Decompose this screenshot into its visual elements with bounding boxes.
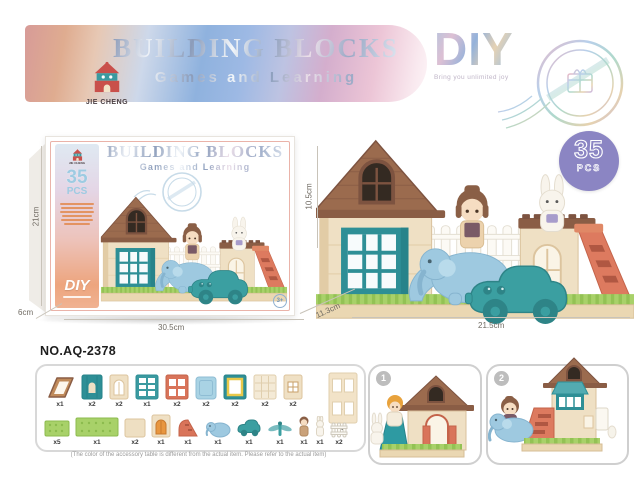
small-window-panel-icon [283, 374, 303, 400]
part-girl-figure: x1 [298, 416, 310, 447]
part-qty: x2 [88, 402, 95, 409]
box-width-dim-line [64, 319, 304, 320]
badge-label: PCS [559, 163, 619, 173]
part-lattice-panel: x2 [253, 374, 277, 409]
part-small-baseplate: x5 [44, 418, 70, 447]
part-qty: x1 [93, 440, 100, 447]
part-qty: x2 [115, 402, 122, 409]
teal-grid-window-icon [135, 374, 159, 400]
car-icon [236, 418, 262, 438]
part-slide: x1 [176, 416, 200, 447]
part-qty: x2 [289, 402, 296, 409]
badge-number: 35 [559, 138, 619, 163]
part-qty: x5 [53, 440, 60, 447]
girl-figure-icon [298, 416, 310, 438]
red-window-panel-icon [165, 374, 189, 400]
part-small-window-panel: x2 [283, 374, 303, 409]
part-car: x1 [236, 418, 262, 447]
part-qty: x1 [56, 402, 63, 409]
part-qty: x1 [157, 440, 164, 447]
model-number: NO.AQ-2378 [40, 344, 116, 358]
rabbit-figure-icon [315, 416, 325, 438]
banner-subtitle: Games and Learning [111, 69, 401, 86]
box-front-face: JIE CHENG 35 PCS DIY BUILDING BLOCKS Gam… [45, 136, 295, 316]
part-elephant-slide: x1 [205, 418, 231, 447]
parts-row-1: x1 x2 x2 [45, 372, 322, 408]
postmark-gift-stamp-icon [490, 36, 635, 136]
assembly-photo-1: 1 [368, 364, 482, 465]
part-qty: x1 [245, 440, 252, 447]
part-plain-panel: x2 [124, 418, 146, 447]
box-diy-label: DIY [63, 278, 91, 293]
part-rabbit-figure: x1 [315, 416, 325, 447]
lattice-panel-icon [253, 374, 277, 400]
box-pcs-number: 35 [66, 168, 87, 187]
part-teal-grid-window: x1 [135, 374, 159, 409]
part-qty: x1 [214, 440, 221, 447]
part-qty: x2 [202, 402, 209, 409]
step-1-badge: 1 [376, 371, 391, 386]
part-qty: x1 [276, 440, 283, 447]
photo-width-dim-line [352, 317, 630, 318]
box-pcs-label: PCS [67, 187, 88, 197]
accessory-color-note: (The color of the accessory table is dif… [35, 452, 362, 458]
door-panel-icon [151, 414, 171, 438]
toy-scene-illustration [100, 195, 288, 305]
slide-icon [176, 416, 200, 438]
blue-square-panel-icon [195, 376, 217, 400]
product-sheet: JIE CHENG BUILDING BLOCKS Games and Lear… [0, 0, 640, 480]
castle-house-icon [71, 149, 84, 161]
photo-height-dim: 10.5cm [305, 176, 314, 218]
teal-door-panel-icon [81, 374, 103, 400]
part-qty: x1 [300, 440, 307, 447]
part-arch-window-panel: x2 [109, 374, 129, 409]
part-blue-square-panel: x2 [195, 376, 217, 409]
yellow-frame-panel-icon [223, 374, 247, 400]
brand-name: JIE CHENG [77, 99, 137, 106]
part-qty: x1 [184, 440, 191, 447]
box-diy-underline [63, 296, 91, 299]
photo-height-dim-line [317, 146, 318, 248]
box-left-column: JIE CHENG 35 PCS DIY [55, 144, 99, 308]
assembly-photo-2: 2 [486, 364, 629, 465]
brand-name-small: JIE CHENG [69, 161, 85, 165]
elephant-slide-icon [205, 418, 231, 438]
part-yellow-frame-panel: x2 [223, 374, 247, 409]
box-depth-dim: 6cm [18, 308, 33, 317]
box-width-dim: 30.5cm [158, 323, 184, 332]
roof-panel-icon [45, 374, 75, 400]
dragonfly-icon [267, 420, 293, 438]
description-text-lines [60, 203, 94, 225]
age-3plus-badge: 3+ [273, 294, 287, 308]
part-qty: x2 [231, 402, 238, 409]
part-qty: x2 [131, 440, 138, 447]
part-large-baseplate: x1 [75, 416, 119, 447]
part-roof-panel: x1 [45, 374, 75, 409]
box-title: BUILDING BLOCKS [102, 142, 288, 162]
small-baseplate-icon [44, 418, 70, 438]
header-banner: JIE CHENG BUILDING BLOCKS Games and Lear… [25, 25, 427, 102]
step-2-badge: 2 [494, 371, 509, 386]
banner-title: BUILDING BLOCKS [111, 33, 401, 64]
parts-row-2: x5 x1 x2 [44, 412, 348, 446]
plain-panel-icon [124, 418, 146, 438]
part-teal-door-panel: x2 [81, 374, 103, 409]
parts-list-box: x1 x2 x2 [35, 364, 366, 452]
part-fence: x2 [330, 420, 348, 447]
part-qty: x1 [143, 402, 150, 409]
box-height-dim-line [41, 146, 42, 306]
large-baseplate-icon [75, 416, 119, 438]
package-box-shot: JIE CHENG 35 PCS DIY BUILDING BLOCKS Gam… [26, 134, 328, 334]
box-height-dim: 21cm [32, 197, 41, 237]
part-door-panel: x1 [151, 414, 171, 447]
part-qty: x2 [173, 402, 180, 409]
pcs-count-badge: 35 PCS [559, 131, 619, 191]
part-red-window-panel: x2 [165, 374, 189, 409]
photo-width-dim: 21.5cm [478, 321, 504, 330]
part-dragonfly: x1 [267, 420, 293, 447]
fence-icon [330, 420, 348, 438]
part-qty: x2 [261, 402, 268, 409]
part-qty: x2 [335, 440, 342, 447]
assembly-scene-2 [488, 350, 627, 463]
arch-window-panel-icon [109, 374, 129, 400]
box-diy-badge: DIY [63, 278, 91, 299]
part-qty: x1 [316, 440, 323, 447]
